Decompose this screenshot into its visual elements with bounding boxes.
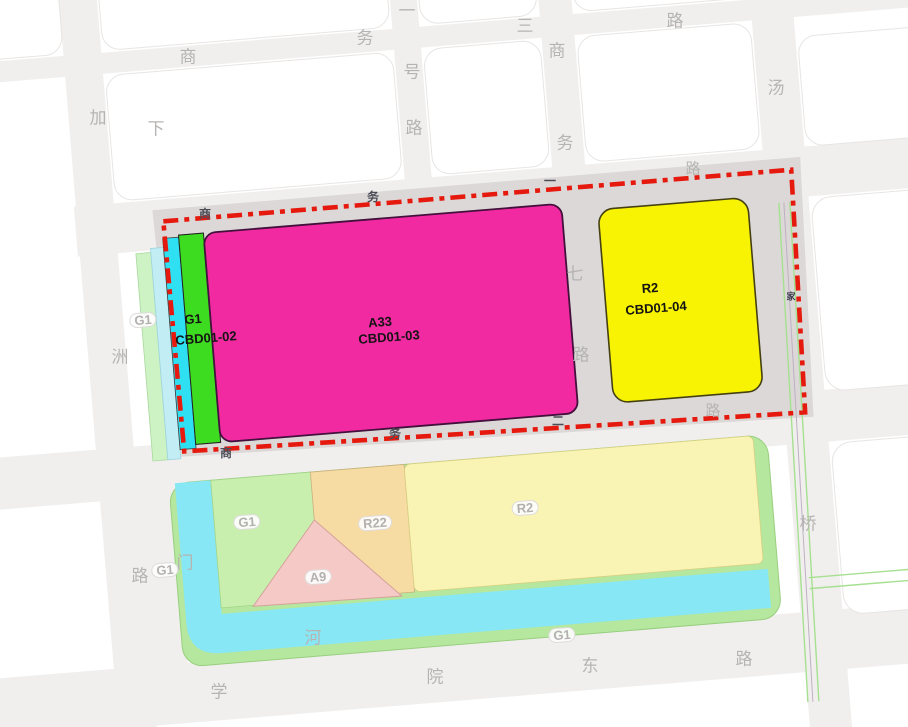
- parcel-code-cbd01-03: CBD01-03: [358, 328, 420, 346]
- road-label-char: 路: [406, 120, 423, 137]
- road-label-char: 商: [549, 43, 566, 60]
- road-label-char: 学: [211, 684, 228, 701]
- road-label-char: 路: [736, 651, 753, 668]
- pill-label-r2-south: R2: [511, 499, 539, 516]
- road-label-char: 三: [517, 18, 534, 35]
- parcel-code-cbd01-02: CBD01-02: [175, 329, 237, 347]
- road-label-char: 商: [180, 49, 197, 66]
- road-label-char: 一: [544, 175, 556, 187]
- pill-label-r22: R22: [358, 514, 393, 532]
- road-label-char: 东: [582, 658, 599, 675]
- road-label-char: 院: [427, 669, 444, 686]
- road-label-char: 二: [552, 415, 564, 427]
- road-label-char: 汤: [768, 80, 785, 97]
- pill-label-g1-west: G1: [129, 311, 157, 328]
- road-label-char: 号: [404, 64, 421, 81]
- block-label-xia: 下: [148, 121, 165, 138]
- road-label-char: 商: [220, 447, 232, 459]
- map-labels: 商 务 三 路 一 号 路 商 务 七 路 汤 家 桥 加 洲 路 学 院 东 …: [0, 0, 908, 727]
- road-label-char: 务: [557, 135, 574, 152]
- road-label-char: 路: [132, 568, 149, 585]
- pill-label-a9: A9: [304, 568, 332, 585]
- road-label-char: 一: [399, 3, 416, 20]
- road-label-char: 路: [667, 13, 684, 30]
- road-label-char: 七: [567, 266, 584, 283]
- road-label-char: 洲: [112, 349, 129, 366]
- parcel-code-cbd01-04: CBD01-04: [625, 299, 687, 317]
- road-label-char: 务: [389, 428, 401, 440]
- parcel-label-g1: G1: [184, 312, 202, 326]
- pill-label-g1-south: G1: [233, 513, 261, 530]
- road-label-char: 路: [705, 404, 720, 419]
- road-label-char: 加: [90, 110, 107, 127]
- road-label-char: 务: [367, 191, 379, 203]
- road-label-char: 路: [573, 347, 590, 364]
- river-label-char: 河: [305, 630, 322, 647]
- road-label-char: 家: [786, 293, 795, 302]
- road-label-char: 商: [199, 208, 211, 220]
- zoning-map: 商 务 三 路 一 号 路 商 务 七 路 汤 家 桥 加 洲 路 学 院 东 …: [0, 0, 908, 727]
- road-label-char: 路: [685, 162, 700, 177]
- river-label-char: 门: [177, 555, 194, 572]
- parcel-label-a33: A33: [368, 315, 393, 330]
- pill-label-g1-gate: G1: [151, 561, 179, 578]
- road-label-char: 桥: [800, 516, 817, 533]
- parcel-label-r2: R2: [641, 281, 659, 295]
- pill-label-g1-river: G1: [548, 626, 576, 643]
- road-label-char: 务: [357, 30, 374, 47]
